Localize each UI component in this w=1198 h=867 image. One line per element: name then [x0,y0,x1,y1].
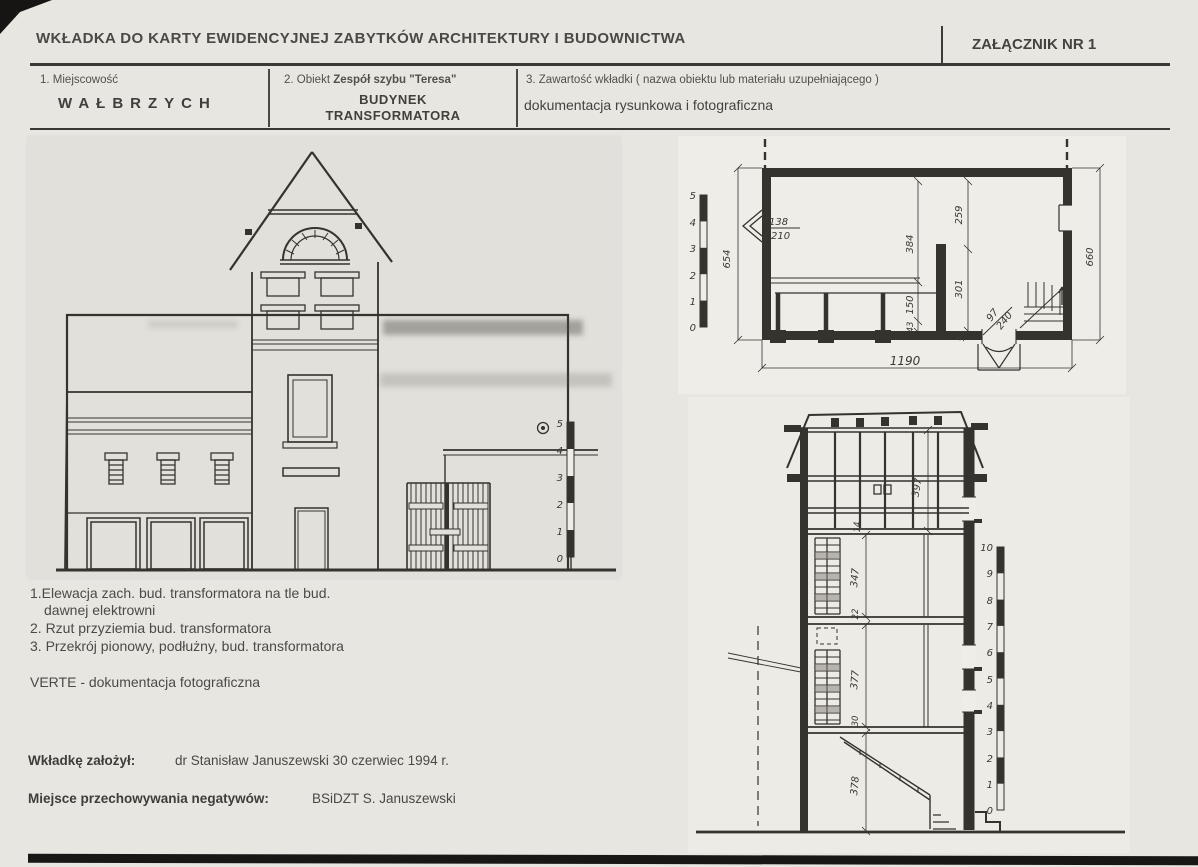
splayed-window: 138 210 [743,210,800,242]
tower-tall-window [283,375,337,448]
caption-item-1b: dawnej elektrowni [44,602,155,618]
svg-text:5: 5 [690,191,696,202]
field-row-rule [30,128,1170,130]
svg-text:3: 3 [690,244,696,255]
svg-text:10: 10 [980,543,993,554]
svg-text:4: 4 [690,218,696,229]
field-object-label-prefix: 2. Obiekt [284,74,333,86]
plan-drawing: 138 210 97 240 384 150 43 259 301 56 65 [680,137,1125,393]
svg-text:1: 1 [987,780,993,791]
svg-text:2: 2 [690,271,696,282]
svg-text:0: 0 [987,806,993,817]
caption-item-1: 1.Elewacja zach. bud. transformatora na … [30,585,330,601]
svg-text:378: 378 [849,776,862,796]
field-object-label: 2. Obiekt Zespół szybu "Teresa" [284,74,456,86]
page-title: WKŁADKA DO KARTY EWIDENCYJNEJ ZABYTKÓW A… [36,30,686,47]
plan-scale-bar: 5 4 3 2 1 0 [690,191,707,334]
svg-text:3: 3 [987,727,993,738]
svg-text:654: 654 [722,249,733,268]
svg-text:22: 22 [851,609,861,620]
svg-text:301: 301 [954,279,965,298]
founder-label: Wkładkę założył: [28,753,135,768]
field-divider-2 [516,69,518,127]
svg-text:384: 384 [905,234,916,253]
founder-value: dr Stanisław Januszewski 30 czerwiec 199… [175,753,449,768]
scan-edge-artifact [28,854,1198,865]
attachment-label: ZAŁĄCZNIK NR 1 [972,36,1096,53]
caption-verte: VERTE - dokumentacja fotograficzna [30,674,260,690]
field-object-value-line2: TRANSFORMATORA [270,108,516,123]
field-place-label: 1. Miejscowość [40,74,118,86]
roof-structure [784,412,988,528]
photocopy-smudge [148,320,612,387]
svg-text:43: 43 [906,322,916,333]
elevation-drawing-sheet: 5 4 3 2 1 0 [28,137,620,578]
tower-band [252,340,378,350]
tower-spire-roof [230,152,392,270]
header-rule [30,63,1170,66]
svg-text:14: 14 [853,522,863,533]
hall-partition [771,278,920,283]
power-cable-lines [728,653,806,673]
low-floor [808,727,969,733]
svg-text:1190: 1190 [890,354,921,368]
arched-window [280,228,350,264]
negatives-value: BSiDZT S. Januszewski [312,791,456,806]
svg-text:210: 210 [771,231,790,242]
tower-small-windows [261,272,359,329]
survey-mark-icon [538,423,549,434]
svg-text:1: 1 [690,297,696,308]
tower [230,152,392,570]
porch-canopy [443,450,598,570]
mid-floor [808,617,969,624]
ladder-low [815,628,840,724]
field-place-value: WAŁBRZYCH [58,95,217,112]
wall-niche [1059,205,1072,231]
field-object-label-name: Zespół szybu "Teresa" [333,74,456,86]
scanned-record-card: WKŁADKA DO KARTY EWIDENCYJNEJ ZABYTKÓW A… [0,0,1198,867]
bay-walls [778,293,883,331]
svg-text:377: 377 [849,669,862,690]
attic-floor [808,529,969,534]
plan-door: 97 240 [978,307,1020,370]
caption-item-3: 3. Przekrój pionowy, podłużny, bud. tran… [30,638,344,654]
vent-windows [105,453,233,484]
field-object-value-line1: BUDYNEK [270,92,516,107]
svg-text:3: 3 [557,473,563,484]
svg-text:2: 2 [987,754,993,765]
attachment-divider [941,26,943,65]
elevation-scale-bar: 5 4 3 2 1 0 [557,419,574,565]
plan-outer-walls [767,173,1068,336]
svg-text:660: 660 [1085,247,1096,266]
scan-corner-artifact [0,0,52,34]
stairs [1020,282,1067,328]
svg-text:56: 56 [957,330,967,341]
svg-text:1: 1 [557,527,563,538]
svg-text:30: 30 [851,716,861,727]
front-block-outline [65,392,252,570]
section-drawing: 397 14 347 22 377 30 378 10 9 8 7 6 5 4 [688,398,1130,853]
svg-text:138: 138 [769,217,788,228]
ladder-mid [815,538,840,614]
interior-frames [924,535,928,727]
svg-text:8: 8 [987,596,993,607]
tower-door [283,468,339,570]
negatives-label: Miejsce przechowywania negatywów: [28,791,269,806]
svg-text:4: 4 [987,701,993,712]
svg-text:9: 9 [987,569,993,580]
section-scale-bar: 10 9 8 7 6 5 4 3 2 1 0 [980,543,1004,817]
field-contents-value: dokumentacja rysunkowa i fotograficzna [524,97,773,113]
svg-text:5: 5 [987,675,993,686]
elevation-drawing: 5 4 3 2 1 0 [28,137,620,578]
svg-text:4: 4 [557,446,563,457]
ground-floor-openings [87,518,248,569]
svg-text:7: 7 [987,622,994,633]
svg-text:0: 0 [557,554,563,565]
projection-lines [765,139,1067,168]
svg-text:0: 0 [690,323,696,334]
svg-text:5: 5 [557,419,563,430]
svg-text:347: 347 [849,567,862,588]
slatted-gate [407,483,490,570]
front-block-cornice [66,418,252,434]
svg-text:397: 397 [910,477,924,498]
svg-text:150: 150 [905,295,916,314]
field-contents-label: 3. Zawartość wkładki ( nazwa obiektu lub… [526,74,879,86]
svg-text:259: 259 [954,205,965,224]
svg-text:2: 2 [557,500,563,511]
svg-text:6: 6 [987,648,993,659]
caption-item-2: 2. Rzut przyziemia bud. transformatora [30,620,271,636]
